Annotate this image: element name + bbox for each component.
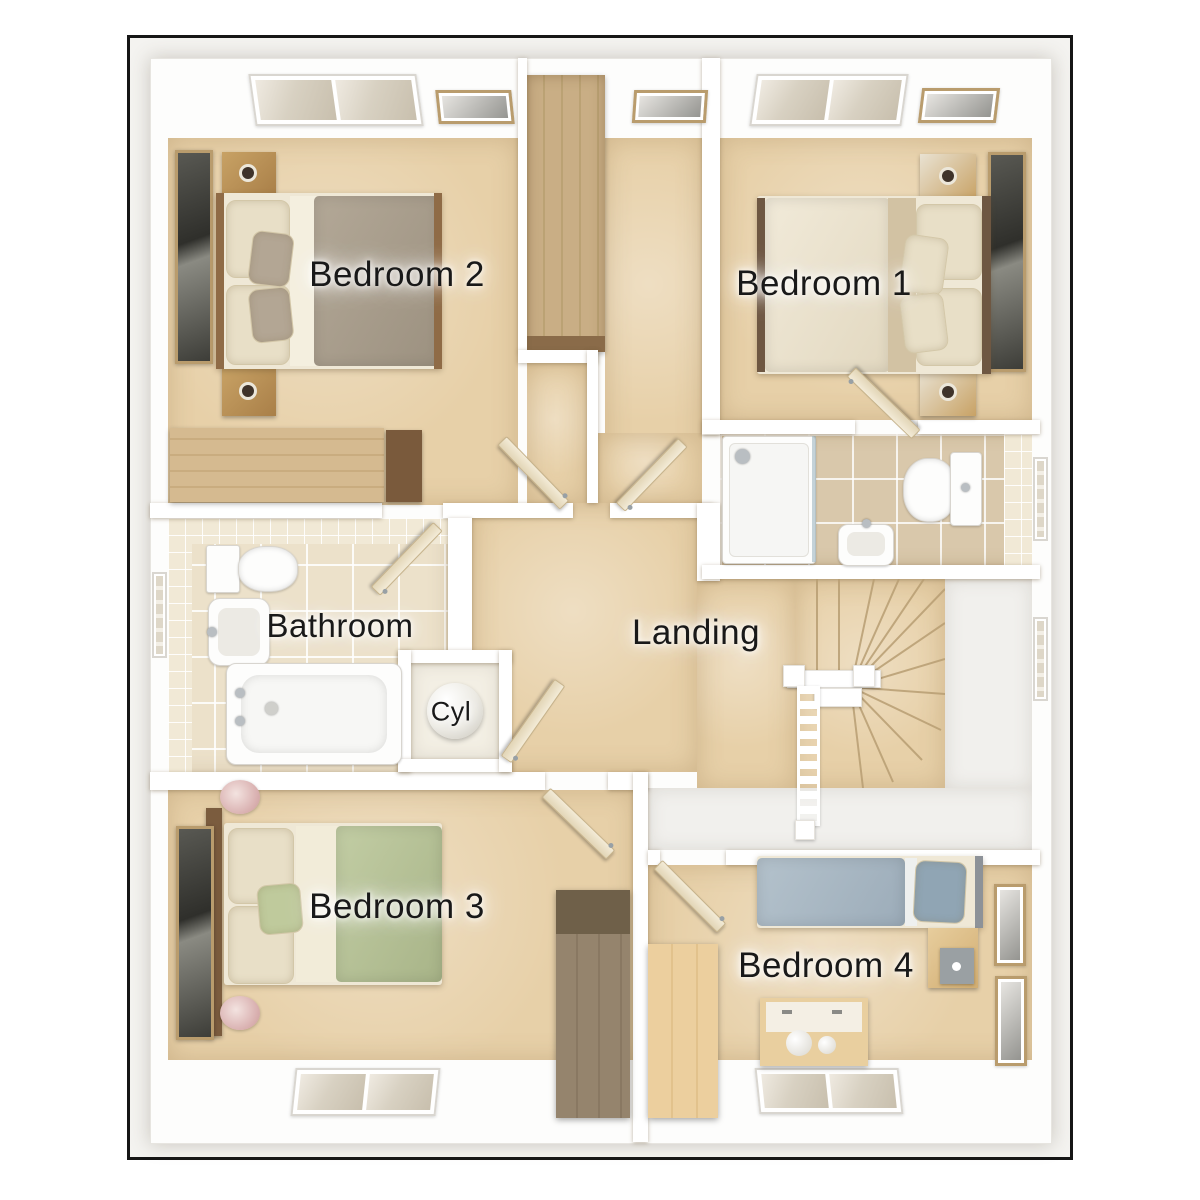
nightstand bbox=[920, 370, 976, 416]
window-pane bbox=[297, 1074, 365, 1110]
drawer-handle bbox=[782, 1010, 792, 1014]
window-pane bbox=[828, 80, 902, 120]
wardrobe-top bbox=[556, 890, 630, 934]
wall-art bbox=[435, 90, 515, 124]
wall-mirror bbox=[175, 150, 213, 364]
flower-decoration bbox=[220, 780, 260, 814]
window-pane bbox=[1037, 621, 1044, 697]
lamp-bulb bbox=[952, 962, 961, 971]
stair-window bbox=[1033, 617, 1048, 701]
chest-of-drawers bbox=[760, 998, 868, 1066]
shower-glass bbox=[812, 436, 816, 562]
shower-head bbox=[735, 449, 750, 464]
basin bbox=[838, 524, 894, 566]
wardrobe bbox=[556, 890, 630, 1118]
duvet bbox=[757, 858, 905, 926]
wall bbox=[443, 503, 573, 518]
window bbox=[248, 74, 423, 126]
toilet-bowl bbox=[238, 546, 298, 592]
window-pane bbox=[255, 80, 337, 120]
stairwell-void-floor bbox=[945, 579, 1032, 788]
nightstand bbox=[920, 154, 976, 200]
accent-pillow bbox=[256, 882, 304, 936]
table-lamp bbox=[942, 386, 954, 398]
landing-stair-side-floor bbox=[697, 579, 795, 790]
window-pane bbox=[829, 1074, 897, 1108]
pillow bbox=[912, 860, 967, 925]
bathroom-window bbox=[152, 572, 167, 658]
window bbox=[755, 1068, 904, 1114]
room-label-bedroom2: Bedroom 2 bbox=[309, 255, 485, 295]
room-label-bathroom: Bathroom bbox=[266, 607, 413, 645]
room-label-bedroom3: Bedroom 3 bbox=[309, 887, 485, 927]
flush-button bbox=[961, 483, 970, 492]
wall bbox=[702, 420, 855, 434]
window-pane bbox=[335, 80, 417, 120]
faucet bbox=[207, 627, 217, 637]
bed-headboard bbox=[216, 193, 224, 369]
bathtub bbox=[226, 663, 402, 765]
accent-pillow bbox=[247, 230, 295, 289]
banister-balusters bbox=[797, 686, 820, 826]
room-label-bedroom1: Bedroom 1 bbox=[736, 264, 912, 304]
landing-south-floor bbox=[648, 788, 1032, 850]
decor-bowl bbox=[786, 1030, 812, 1056]
accent-pillow bbox=[247, 286, 294, 344]
newel-post bbox=[795, 820, 815, 840]
wall-art bbox=[994, 884, 1026, 966]
wall-mirror bbox=[988, 152, 1026, 372]
wall-mirror bbox=[176, 826, 214, 1040]
window-pane bbox=[756, 80, 830, 120]
wall bbox=[702, 565, 1040, 579]
nightstand bbox=[928, 928, 978, 988]
window-pane bbox=[1037, 461, 1044, 537]
wall bbox=[448, 518, 472, 658]
wall-art bbox=[995, 976, 1027, 1066]
chest-top bbox=[766, 1002, 862, 1032]
wall bbox=[518, 58, 527, 352]
wall bbox=[587, 350, 598, 503]
room-label-landing: Landing bbox=[632, 613, 760, 653]
desk bbox=[170, 428, 384, 502]
shower-tray bbox=[722, 436, 816, 564]
wall-art bbox=[918, 88, 1000, 123]
nightstand bbox=[222, 368, 276, 416]
newel-post bbox=[853, 665, 875, 687]
cylinder-cupboard-wall bbox=[398, 759, 512, 772]
landing-storage-cupboard bbox=[527, 75, 605, 352]
faucet bbox=[862, 519, 871, 528]
nightstand bbox=[222, 152, 276, 196]
wall bbox=[918, 420, 1040, 434]
bed-headboard bbox=[975, 856, 983, 928]
desk-chair bbox=[386, 430, 422, 502]
floorplan-page: Bedroom 2 Bedroom 1 Bathroom Cy bbox=[0, 0, 1200, 1200]
window-pane bbox=[761, 1074, 829, 1108]
banister-return bbox=[814, 688, 862, 707]
wardrobe bbox=[648, 944, 718, 1118]
ensuite-wall-tiles bbox=[1004, 434, 1032, 565]
single-bed bbox=[757, 856, 983, 928]
wall-art bbox=[632, 90, 708, 123]
window bbox=[749, 74, 908, 126]
bath-tap bbox=[235, 688, 245, 698]
bed-headboard bbox=[982, 196, 991, 374]
basin-bowl bbox=[847, 532, 885, 556]
room-label-cyl: Cyl bbox=[431, 697, 472, 728]
toilet-cistern bbox=[950, 452, 982, 526]
flower-decoration bbox=[220, 996, 260, 1030]
bathroom-wall-tiles-left bbox=[168, 518, 192, 772]
wall bbox=[150, 503, 382, 518]
basin bbox=[208, 598, 270, 666]
toilet-bowl bbox=[903, 458, 957, 522]
newel-post bbox=[783, 665, 805, 687]
table-lamp bbox=[942, 170, 954, 182]
wall bbox=[518, 350, 598, 363]
basin-bowl bbox=[218, 608, 260, 656]
window-pane bbox=[366, 1074, 434, 1110]
room-label-bedroom4: Bedroom 4 bbox=[738, 946, 914, 986]
cylinder-cupboard-wall bbox=[398, 650, 512, 663]
bath-tap bbox=[235, 716, 245, 726]
ensuite-window bbox=[1033, 457, 1048, 541]
bath-drain bbox=[265, 702, 278, 715]
wall bbox=[633, 772, 648, 1142]
window bbox=[290, 1068, 440, 1116]
bathtub-inner bbox=[241, 675, 387, 753]
bathroom-wall-tiles bbox=[168, 518, 448, 544]
table-lamp bbox=[242, 385, 254, 397]
toilet-cistern bbox=[206, 545, 240, 593]
window-pane bbox=[156, 576, 163, 654]
drawer-handle bbox=[832, 1010, 842, 1014]
wall bbox=[150, 772, 545, 790]
table-lamp bbox=[242, 167, 254, 179]
decor-jug bbox=[818, 1036, 836, 1054]
